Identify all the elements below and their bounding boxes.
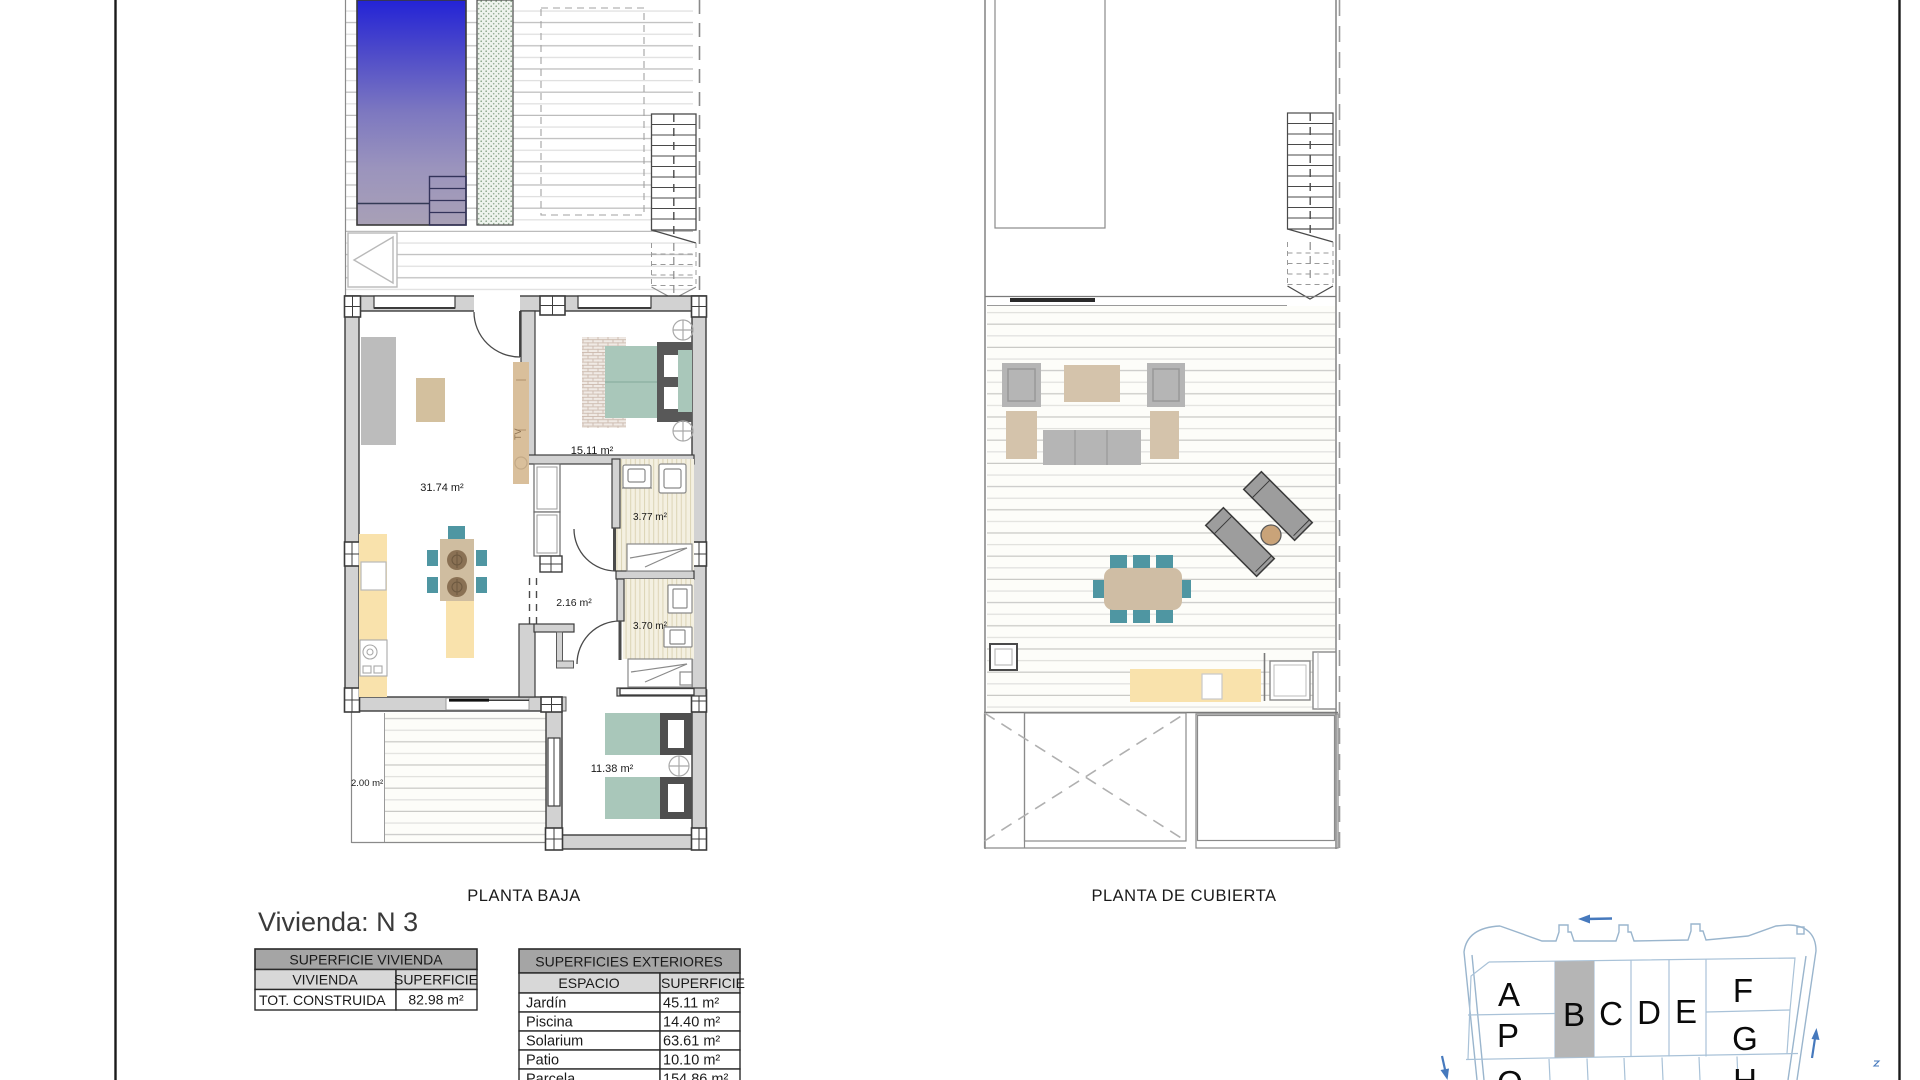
svg-text:SUPERFICIE VIVIENDA: SUPERFICIE VIVIENDA [289, 952, 443, 968]
svg-text:P: P [1497, 1017, 1519, 1054]
svg-text:B: B [1563, 996, 1585, 1033]
svg-text:154.86 m²: 154.86 m² [663, 1072, 728, 1080]
svg-text:D: D [1637, 994, 1661, 1031]
svg-text:H: H [1733, 1062, 1757, 1080]
svg-text:10.10 m²: 10.10 m² [663, 1053, 720, 1069]
svg-text:15.11 m²: 15.11 m² [571, 445, 614, 457]
svg-text:G: G [1732, 1020, 1758, 1057]
svg-text:3.77 m²: 3.77 m² [633, 512, 668, 523]
svg-text:Parcela: Parcela [526, 1072, 576, 1080]
svg-text:Jardín: Jardín [526, 996, 566, 1012]
svg-text:C: C [1599, 995, 1623, 1032]
svg-text:TV: TV [513, 428, 523, 440]
svg-text:E: E [1675, 993, 1697, 1030]
svg-text:F: F [1733, 972, 1753, 1009]
svg-text:VIVIENDA: VIVIENDA [292, 972, 358, 988]
svg-text:Piscina: Piscina [526, 1015, 574, 1031]
svg-text:Solarium: Solarium [526, 1034, 583, 1050]
svg-text:SUPERFICIE: SUPERFICIE [394, 972, 478, 988]
svg-text:63.61 m²: 63.61 m² [663, 1034, 720, 1050]
svg-text:2.16 m²: 2.16 m² [556, 597, 592, 609]
svg-text:82.98 m²: 82.98 m² [408, 992, 464, 1008]
svg-text:11.38 m²: 11.38 m² [591, 763, 634, 775]
svg-text:2.00 m²: 2.00 m² [351, 778, 383, 789]
svg-text:31.74 m²: 31.74 m² [420, 482, 464, 494]
svg-text:TOT. CONSTRUIDA: TOT. CONSTRUIDA [259, 992, 386, 1008]
svg-text:3.70 m²: 3.70 m² [633, 621, 668, 632]
svg-text:Patio: Patio [526, 1053, 559, 1069]
svg-text:SUPERFICIE: SUPERFICIE [661, 975, 745, 991]
svg-text:45.11 m²: 45.11 m² [663, 996, 719, 1012]
svg-text:A: A [1498, 976, 1520, 1013]
svg-text:ESPACIO: ESPACIO [558, 975, 619, 991]
svg-text:PLANTA BAJA: PLANTA BAJA [467, 887, 580, 905]
svg-text:PLANTA DE CUBIERTA: PLANTA DE CUBIERTA [1091, 887, 1276, 905]
svg-text:Vivienda: N 3: Vivienda: N 3 [258, 907, 418, 937]
svg-text:O: O [1497, 1064, 1523, 1080]
svg-text:SUPERFICIES EXTERIORES: SUPERFICIES EXTERIORES [535, 954, 722, 970]
svg-text:14.40 m²: 14.40 m² [663, 1015, 720, 1031]
